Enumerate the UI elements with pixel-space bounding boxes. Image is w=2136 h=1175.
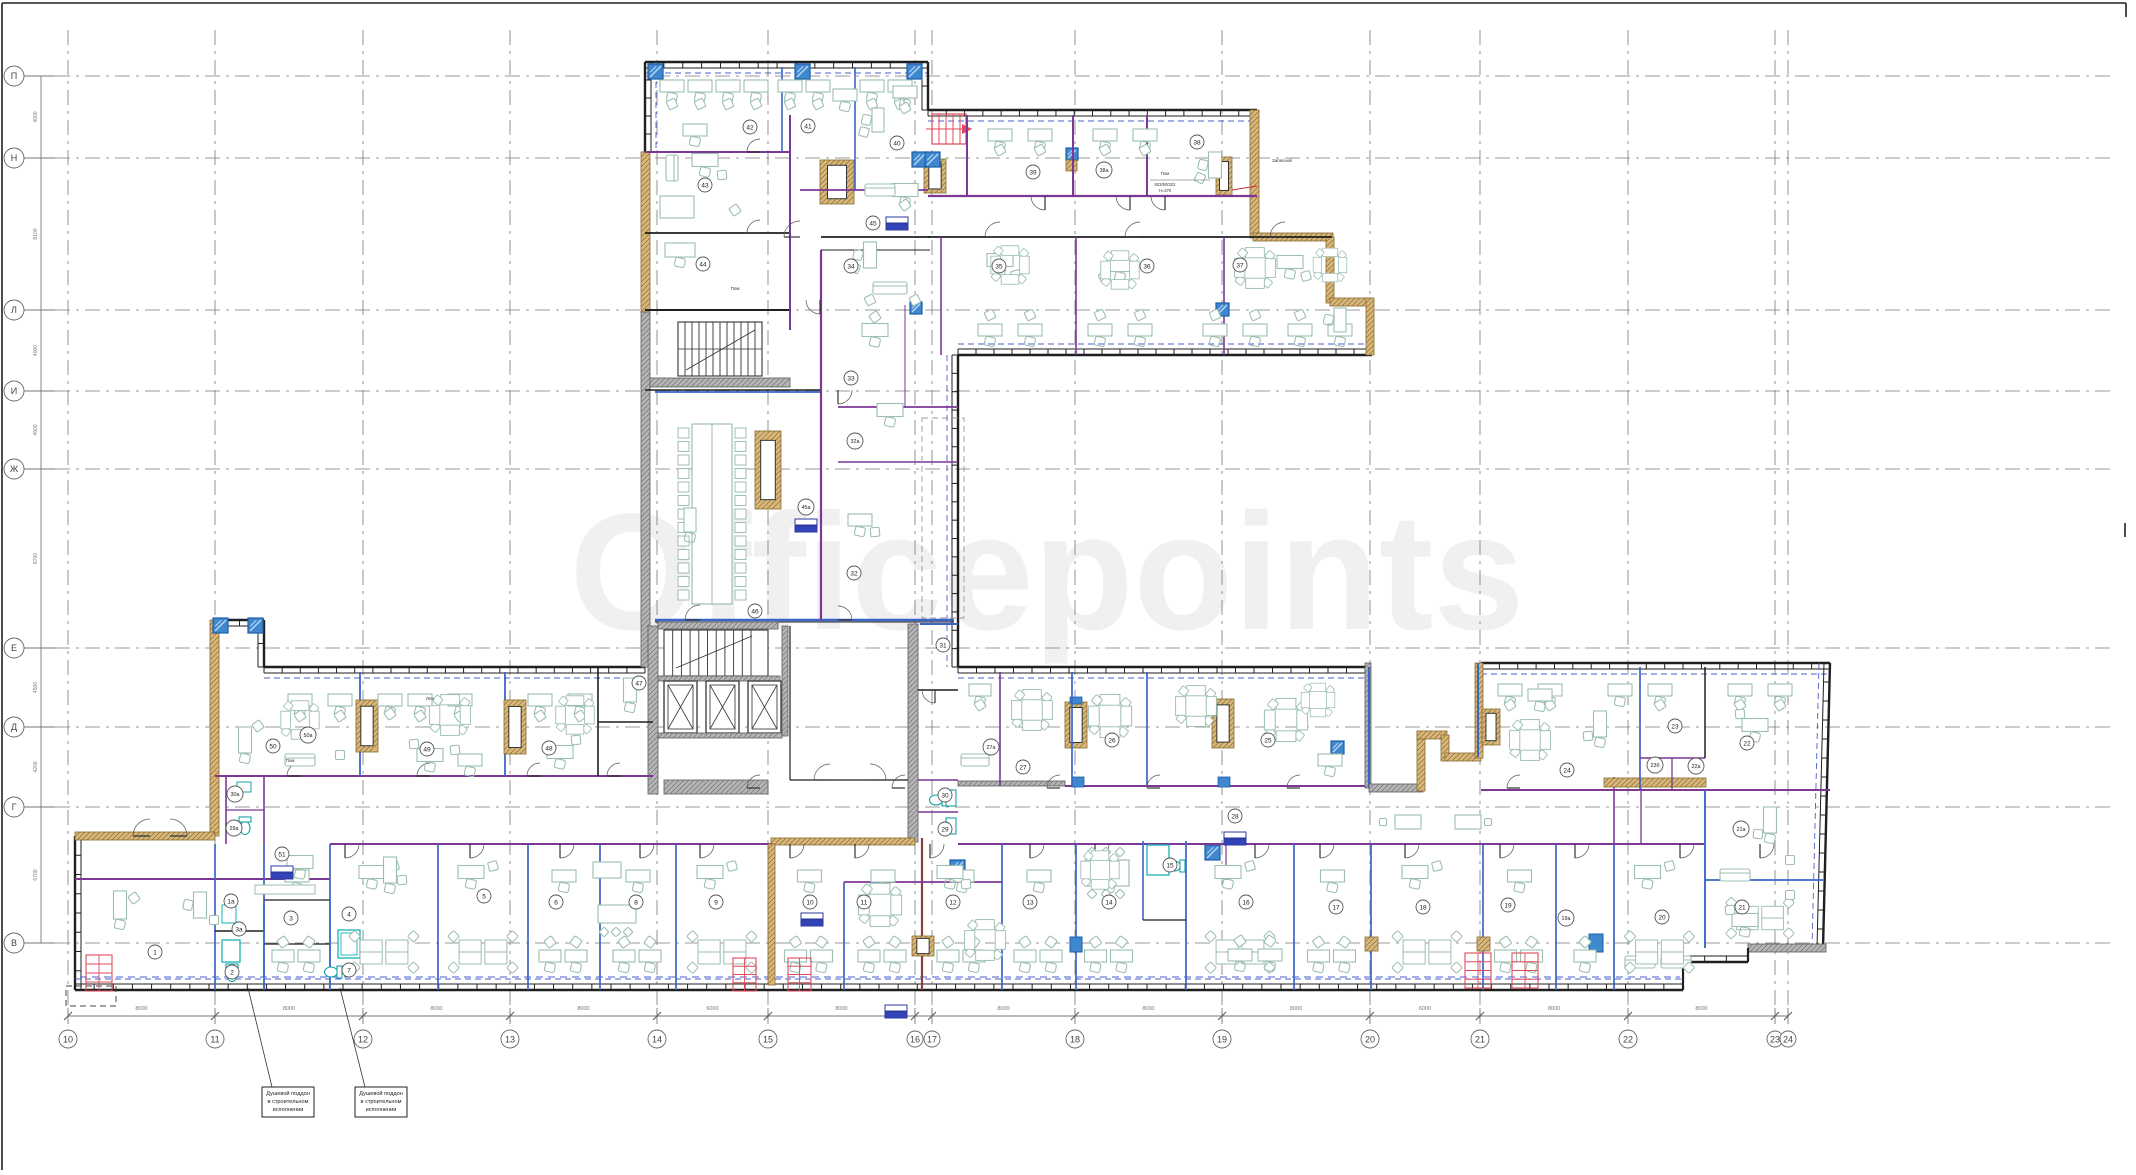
svg-text:И: И — [11, 386, 17, 396]
svg-text:22: 22 — [1743, 740, 1751, 747]
svg-text:исполнении: исполнении — [366, 1107, 397, 1113]
svg-text:29а: 29а — [230, 826, 239, 832]
svg-text:6000: 6000 — [706, 1006, 718, 1012]
svg-text:25: 25 — [1264, 737, 1272, 744]
svg-text:21: 21 — [1475, 1034, 1485, 1044]
svg-text:Н: Н — [11, 153, 18, 163]
svg-text:8000: 8000 — [1142, 1006, 1154, 1012]
svg-text:8700: 8700 — [33, 553, 39, 564]
svg-text:исполнении: исполнении — [273, 1107, 304, 1113]
svg-text:44: 44 — [699, 261, 707, 268]
svg-text:32: 32 — [850, 570, 858, 577]
svg-text:Пом: Пом — [1161, 171, 1169, 176]
svg-text:9: 9 — [714, 899, 718, 906]
svg-text:4500: 4500 — [33, 682, 39, 693]
svg-text:12: 12 — [358, 1034, 368, 1044]
svg-text:11: 11 — [210, 1034, 219, 1044]
svg-text:4000: 4000 — [33, 345, 39, 356]
svg-text:Душевой поддон: Душевой поддон — [359, 1090, 403, 1097]
svg-text:34: 34 — [847, 263, 855, 270]
svg-text:48: 48 — [545, 745, 553, 752]
svg-text:19: 19 — [1217, 1034, 1227, 1044]
svg-text:2: 2 — [230, 969, 234, 976]
svg-text:30: 30 — [941, 792, 949, 799]
svg-text:Ж: Ж — [10, 464, 19, 474]
svg-text:45а: 45а — [802, 505, 811, 511]
svg-text:19а: 19а — [1562, 916, 1571, 922]
svg-text:4: 4 — [347, 911, 351, 918]
svg-text:13: 13 — [505, 1034, 515, 1044]
svg-text:50а: 50а — [304, 733, 313, 739]
svg-text:50: 50 — [269, 743, 277, 750]
svg-text:3: 3 — [289, 915, 293, 922]
svg-text:Душевой поддон: Душевой поддон — [266, 1090, 310, 1097]
svg-text:8000: 8000 — [577, 1006, 589, 1012]
svg-text:24: 24 — [1783, 1034, 1793, 1044]
svg-text:Е: Е — [11, 643, 17, 653]
svg-text:18: 18 — [1070, 1034, 1080, 1044]
svg-text:23: 23 — [1671, 723, 1679, 730]
svg-text:16: 16 — [1242, 899, 1250, 906]
svg-text:46: 46 — [751, 608, 759, 615]
svg-text:4200: 4200 — [33, 761, 39, 772]
svg-text:33: 33 — [847, 375, 855, 382]
svg-text:40: 40 — [893, 140, 901, 147]
svg-text:13: 13 — [1026, 899, 1034, 906]
svg-text:Н=370: Н=370 — [1159, 188, 1172, 193]
svg-text:в строительном: в строительном — [361, 1099, 402, 1105]
svg-text:14: 14 — [1105, 899, 1113, 906]
svg-text:П: П — [11, 71, 17, 81]
svg-text:38: 38 — [1193, 139, 1201, 146]
svg-text:18: 18 — [1419, 904, 1427, 911]
svg-text:28: 28 — [1231, 813, 1239, 820]
svg-text:26: 26 — [1108, 737, 1116, 744]
svg-text:21: 21 — [1738, 904, 1746, 911]
svg-text:8000: 8000 — [997, 1006, 1009, 1012]
svg-text:15: 15 — [1166, 862, 1174, 869]
svg-text:17: 17 — [927, 1034, 937, 1044]
svg-text:8000: 8000 — [283, 1006, 295, 1012]
svg-text:21а: 21а — [1737, 827, 1746, 833]
svg-text:8000: 8000 — [430, 1006, 442, 1012]
svg-text:43: 43 — [701, 182, 709, 189]
svg-text:8000: 8000 — [1695, 1006, 1707, 1012]
svg-text:Л: Л — [11, 305, 17, 315]
svg-text:6000: 6000 — [1419, 1006, 1431, 1012]
svg-text:В: В — [11, 938, 17, 948]
svg-text:23: 23 — [1770, 1034, 1780, 1044]
svg-text:41: 41 — [804, 123, 812, 130]
svg-text:22: 22 — [1623, 1034, 1633, 1044]
svg-text:1: 1 — [153, 949, 157, 956]
svg-text:503/5003/2: 503/5003/2 — [1155, 182, 1177, 187]
svg-text:8100: 8100 — [33, 228, 39, 239]
svg-text:8000: 8000 — [1548, 1006, 1560, 1012]
svg-text:37: 37 — [1236, 262, 1244, 269]
svg-text:29: 29 — [941, 826, 949, 833]
svg-text:6700: 6700 — [33, 869, 39, 880]
svg-text:49: 49 — [423, 746, 431, 753]
svg-text:Запасной: Запасной — [1272, 157, 1292, 163]
svg-text:14: 14 — [652, 1034, 662, 1044]
svg-text:Д: Д — [11, 722, 17, 732]
svg-text:45: 45 — [869, 220, 877, 227]
svg-text:27: 27 — [1019, 764, 1027, 771]
svg-text:20: 20 — [1365, 1034, 1375, 1044]
svg-text:42: 42 — [746, 124, 754, 131]
svg-text:32а: 32а — [851, 439, 860, 445]
svg-text:в строительном: в строительном — [268, 1099, 309, 1105]
svg-text:1а: 1а — [227, 898, 235, 905]
svg-text:11: 11 — [861, 899, 868, 906]
svg-text:51: 51 — [278, 851, 286, 858]
svg-text:10: 10 — [806, 899, 814, 906]
svg-text:24: 24 — [1563, 767, 1571, 774]
svg-text:8000: 8000 — [1290, 1006, 1302, 1012]
svg-text:Лен: Лен — [426, 696, 434, 701]
svg-text:31: 31 — [939, 642, 947, 649]
svg-text:3а: 3а — [235, 926, 243, 933]
svg-text:30а: 30а — [231, 792, 240, 798]
svg-text:12: 12 — [949, 899, 957, 906]
svg-text:Пом: Пом — [286, 758, 295, 763]
svg-text:39: 39 — [1029, 169, 1037, 176]
svg-text:15: 15 — [763, 1034, 773, 1044]
svg-text:38а: 38а — [1100, 168, 1109, 174]
svg-text:20: 20 — [1658, 914, 1666, 921]
svg-text:8000: 8000 — [835, 1006, 847, 1012]
svg-text:8000: 8000 — [135, 1006, 147, 1012]
svg-text:Пом: Пом — [731, 286, 740, 291]
svg-text:6: 6 — [554, 899, 558, 906]
svg-text:47: 47 — [635, 680, 643, 687]
svg-text:36: 36 — [1143, 263, 1151, 270]
svg-text:27а: 27а — [987, 745, 996, 751]
svg-text:Г: Г — [12, 802, 17, 812]
svg-text:8: 8 — [634, 899, 638, 906]
svg-text:4000: 4000 — [33, 111, 39, 122]
svg-text:17: 17 — [1332, 904, 1340, 911]
svg-text:19: 19 — [1504, 902, 1512, 909]
svg-text:23б: 23б — [1650, 763, 1659, 769]
svg-text:10: 10 — [63, 1034, 73, 1044]
svg-text:35: 35 — [995, 263, 1003, 270]
svg-text:22а: 22а — [1692, 764, 1701, 770]
svg-text:7: 7 — [347, 967, 351, 974]
svg-text:5: 5 — [482, 893, 486, 900]
svg-text:4500: 4500 — [33, 424, 39, 435]
svg-text:16: 16 — [910, 1034, 920, 1044]
